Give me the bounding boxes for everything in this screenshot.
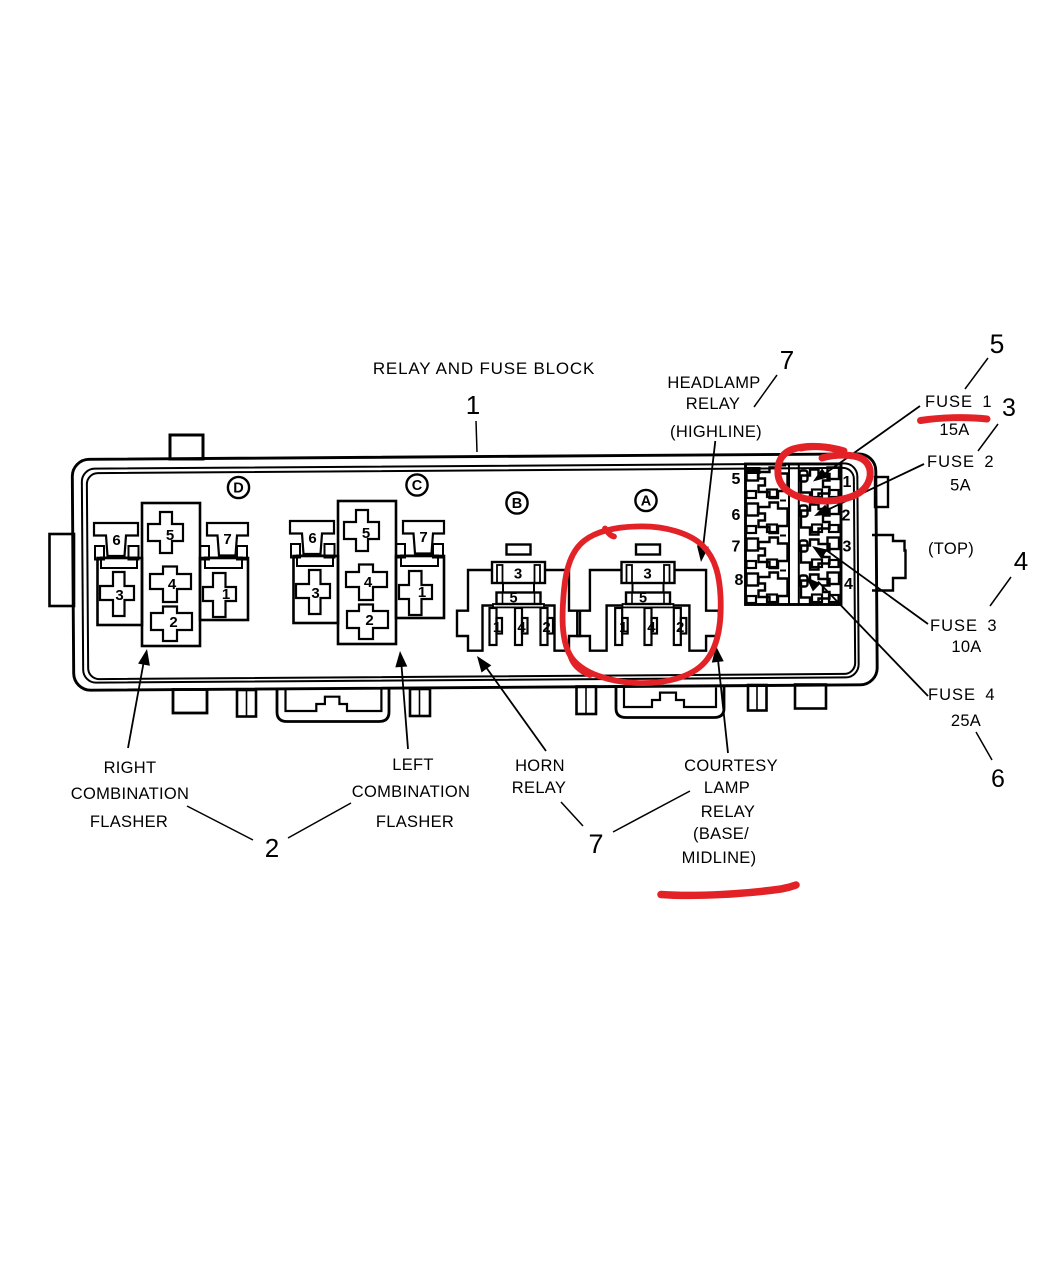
svg-text:FLASHER: FLASHER: [90, 813, 168, 831]
svg-text:7: 7: [780, 345, 794, 375]
svg-text:2: 2: [365, 612, 373, 629]
svg-text:5: 5: [166, 527, 174, 544]
svg-text:5A: 5A: [950, 477, 971, 495]
svg-text:RELAY: RELAY: [686, 395, 740, 413]
svg-text:25A: 25A: [951, 712, 981, 730]
svg-text:1: 1: [418, 584, 426, 601]
svg-text:2: 2: [842, 508, 851, 525]
svg-text:5: 5: [990, 329, 1005, 359]
svg-text:HEADLAMP: HEADLAMP: [667, 374, 760, 392]
svg-text:FUSE: FUSE: [927, 453, 975, 471]
svg-text:(TOP): (TOP): [928, 540, 974, 558]
svg-text:3: 3: [1002, 394, 1016, 422]
svg-text:7: 7: [588, 829, 603, 859]
svg-text:3: 3: [987, 617, 996, 635]
svg-text:7: 7: [419, 529, 427, 546]
svg-text:5: 5: [732, 471, 741, 488]
svg-text:RIGHT: RIGHT: [104, 759, 157, 777]
svg-text:HORN: HORN: [515, 757, 565, 775]
svg-text:10A: 10A: [951, 638, 981, 656]
svg-text:COMBINATION: COMBINATION: [352, 783, 471, 801]
svg-text:3: 3: [514, 566, 522, 583]
svg-text:2: 2: [169, 614, 177, 631]
svg-text:1: 1: [222, 586, 230, 603]
svg-text:1: 1: [493, 619, 501, 636]
svg-text:3: 3: [115, 587, 123, 604]
svg-text:3: 3: [843, 539, 852, 556]
svg-text:FUSE: FUSE: [930, 617, 978, 635]
svg-text:4: 4: [985, 686, 994, 704]
svg-text:1: 1: [982, 393, 991, 411]
svg-text:RELAY: RELAY: [512, 779, 566, 797]
svg-text:B: B: [512, 496, 522, 512]
svg-text:FLASHER: FLASHER: [376, 813, 454, 831]
svg-text:4: 4: [647, 619, 656, 636]
svg-text:4: 4: [364, 574, 373, 591]
svg-text:15A: 15A: [939, 421, 969, 439]
svg-text:D: D: [233, 481, 243, 497]
svg-text:(BASE/: (BASE/: [693, 825, 749, 843]
svg-text:7: 7: [732, 539, 741, 556]
svg-text:4: 4: [844, 576, 853, 593]
svg-text:MIDLINE): MIDLINE): [682, 849, 757, 867]
svg-text:1: 1: [619, 619, 627, 636]
svg-text:1: 1: [843, 474, 852, 491]
svg-text:3: 3: [311, 585, 319, 602]
svg-text:3: 3: [643, 566, 651, 583]
svg-text:6: 6: [732, 507, 741, 524]
svg-text:6: 6: [308, 530, 316, 547]
svg-text:RELAY: RELAY: [701, 803, 755, 821]
svg-text:(HIGHLINE): (HIGHLINE): [670, 423, 762, 441]
svg-text:4: 4: [168, 576, 177, 593]
svg-text:COMBINATION: COMBINATION: [71, 785, 190, 803]
svg-text:COURTESY: COURTESY: [684, 757, 778, 775]
svg-text:6: 6: [112, 532, 120, 549]
svg-text:FUSE: FUSE: [925, 393, 973, 411]
svg-text:1: 1: [466, 390, 480, 420]
svg-text:8: 8: [735, 572, 744, 589]
svg-text:LAMP: LAMP: [704, 779, 750, 797]
svg-text:2: 2: [542, 619, 550, 636]
svg-text:2: 2: [984, 453, 993, 471]
svg-text:A: A: [641, 494, 652, 510]
svg-text:LEFT: LEFT: [392, 756, 434, 774]
svg-text:C: C: [412, 478, 423, 494]
svg-text:FUSE: FUSE: [928, 686, 976, 704]
svg-text:2: 2: [265, 833, 279, 863]
svg-text:4: 4: [517, 619, 526, 636]
svg-text:4: 4: [1014, 546, 1028, 576]
svg-text:RELAY AND FUSE BLOCK: RELAY AND FUSE BLOCK: [373, 359, 595, 378]
svg-text:5: 5: [362, 525, 370, 542]
svg-text:6: 6: [991, 765, 1005, 793]
svg-text:2: 2: [676, 619, 684, 636]
svg-text:7: 7: [223, 531, 231, 548]
